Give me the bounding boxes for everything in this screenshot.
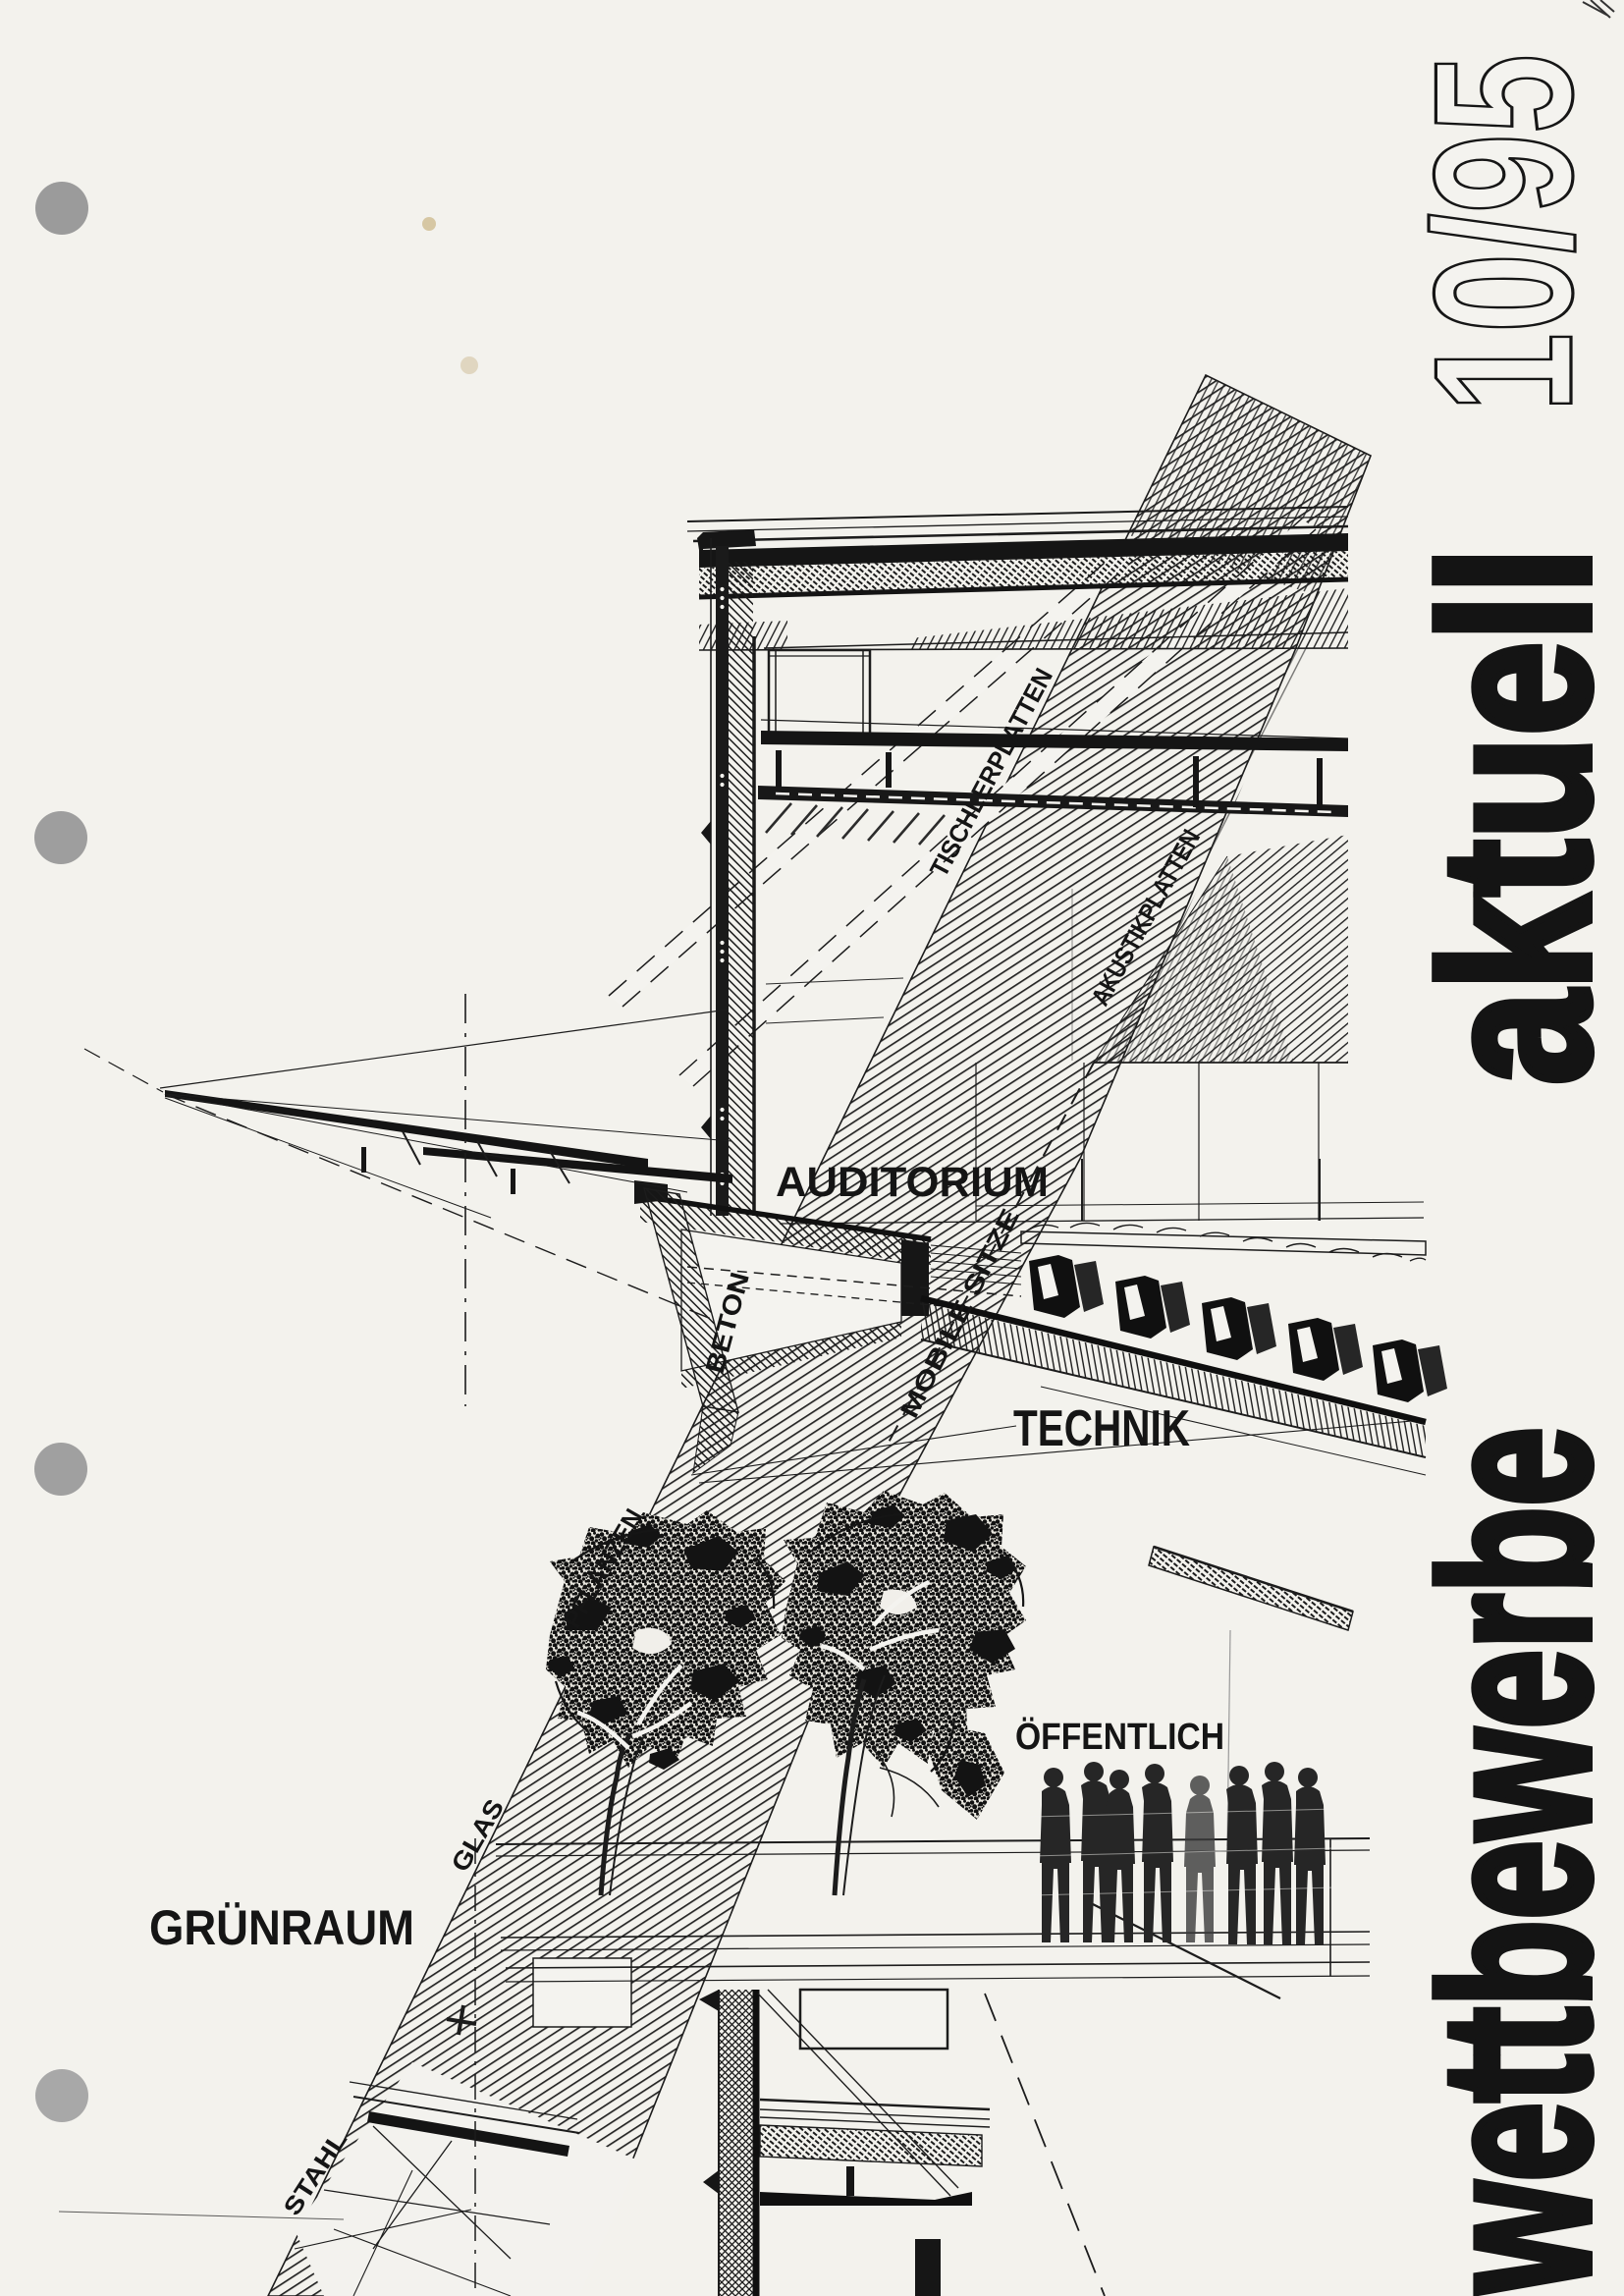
svg-text:ÖFFENTLICH: ÖFFENTLICH bbox=[1015, 1716, 1224, 1758]
svg-text:TECHNIK: TECHNIK bbox=[1013, 1400, 1190, 1457]
svg-text:AUDITORIUM: AUDITORIUM bbox=[776, 1159, 1049, 1206]
svg-text:wettbewerbe: wettbewerbe bbox=[1397, 1427, 1624, 2294]
svg-text:GRÜNRAUM: GRÜNRAUM bbox=[149, 1900, 414, 1955]
svg-text:10/95: 10/95 bbox=[1394, 54, 1613, 412]
svg-text:aktuell: aktuell bbox=[1397, 547, 1624, 1085]
